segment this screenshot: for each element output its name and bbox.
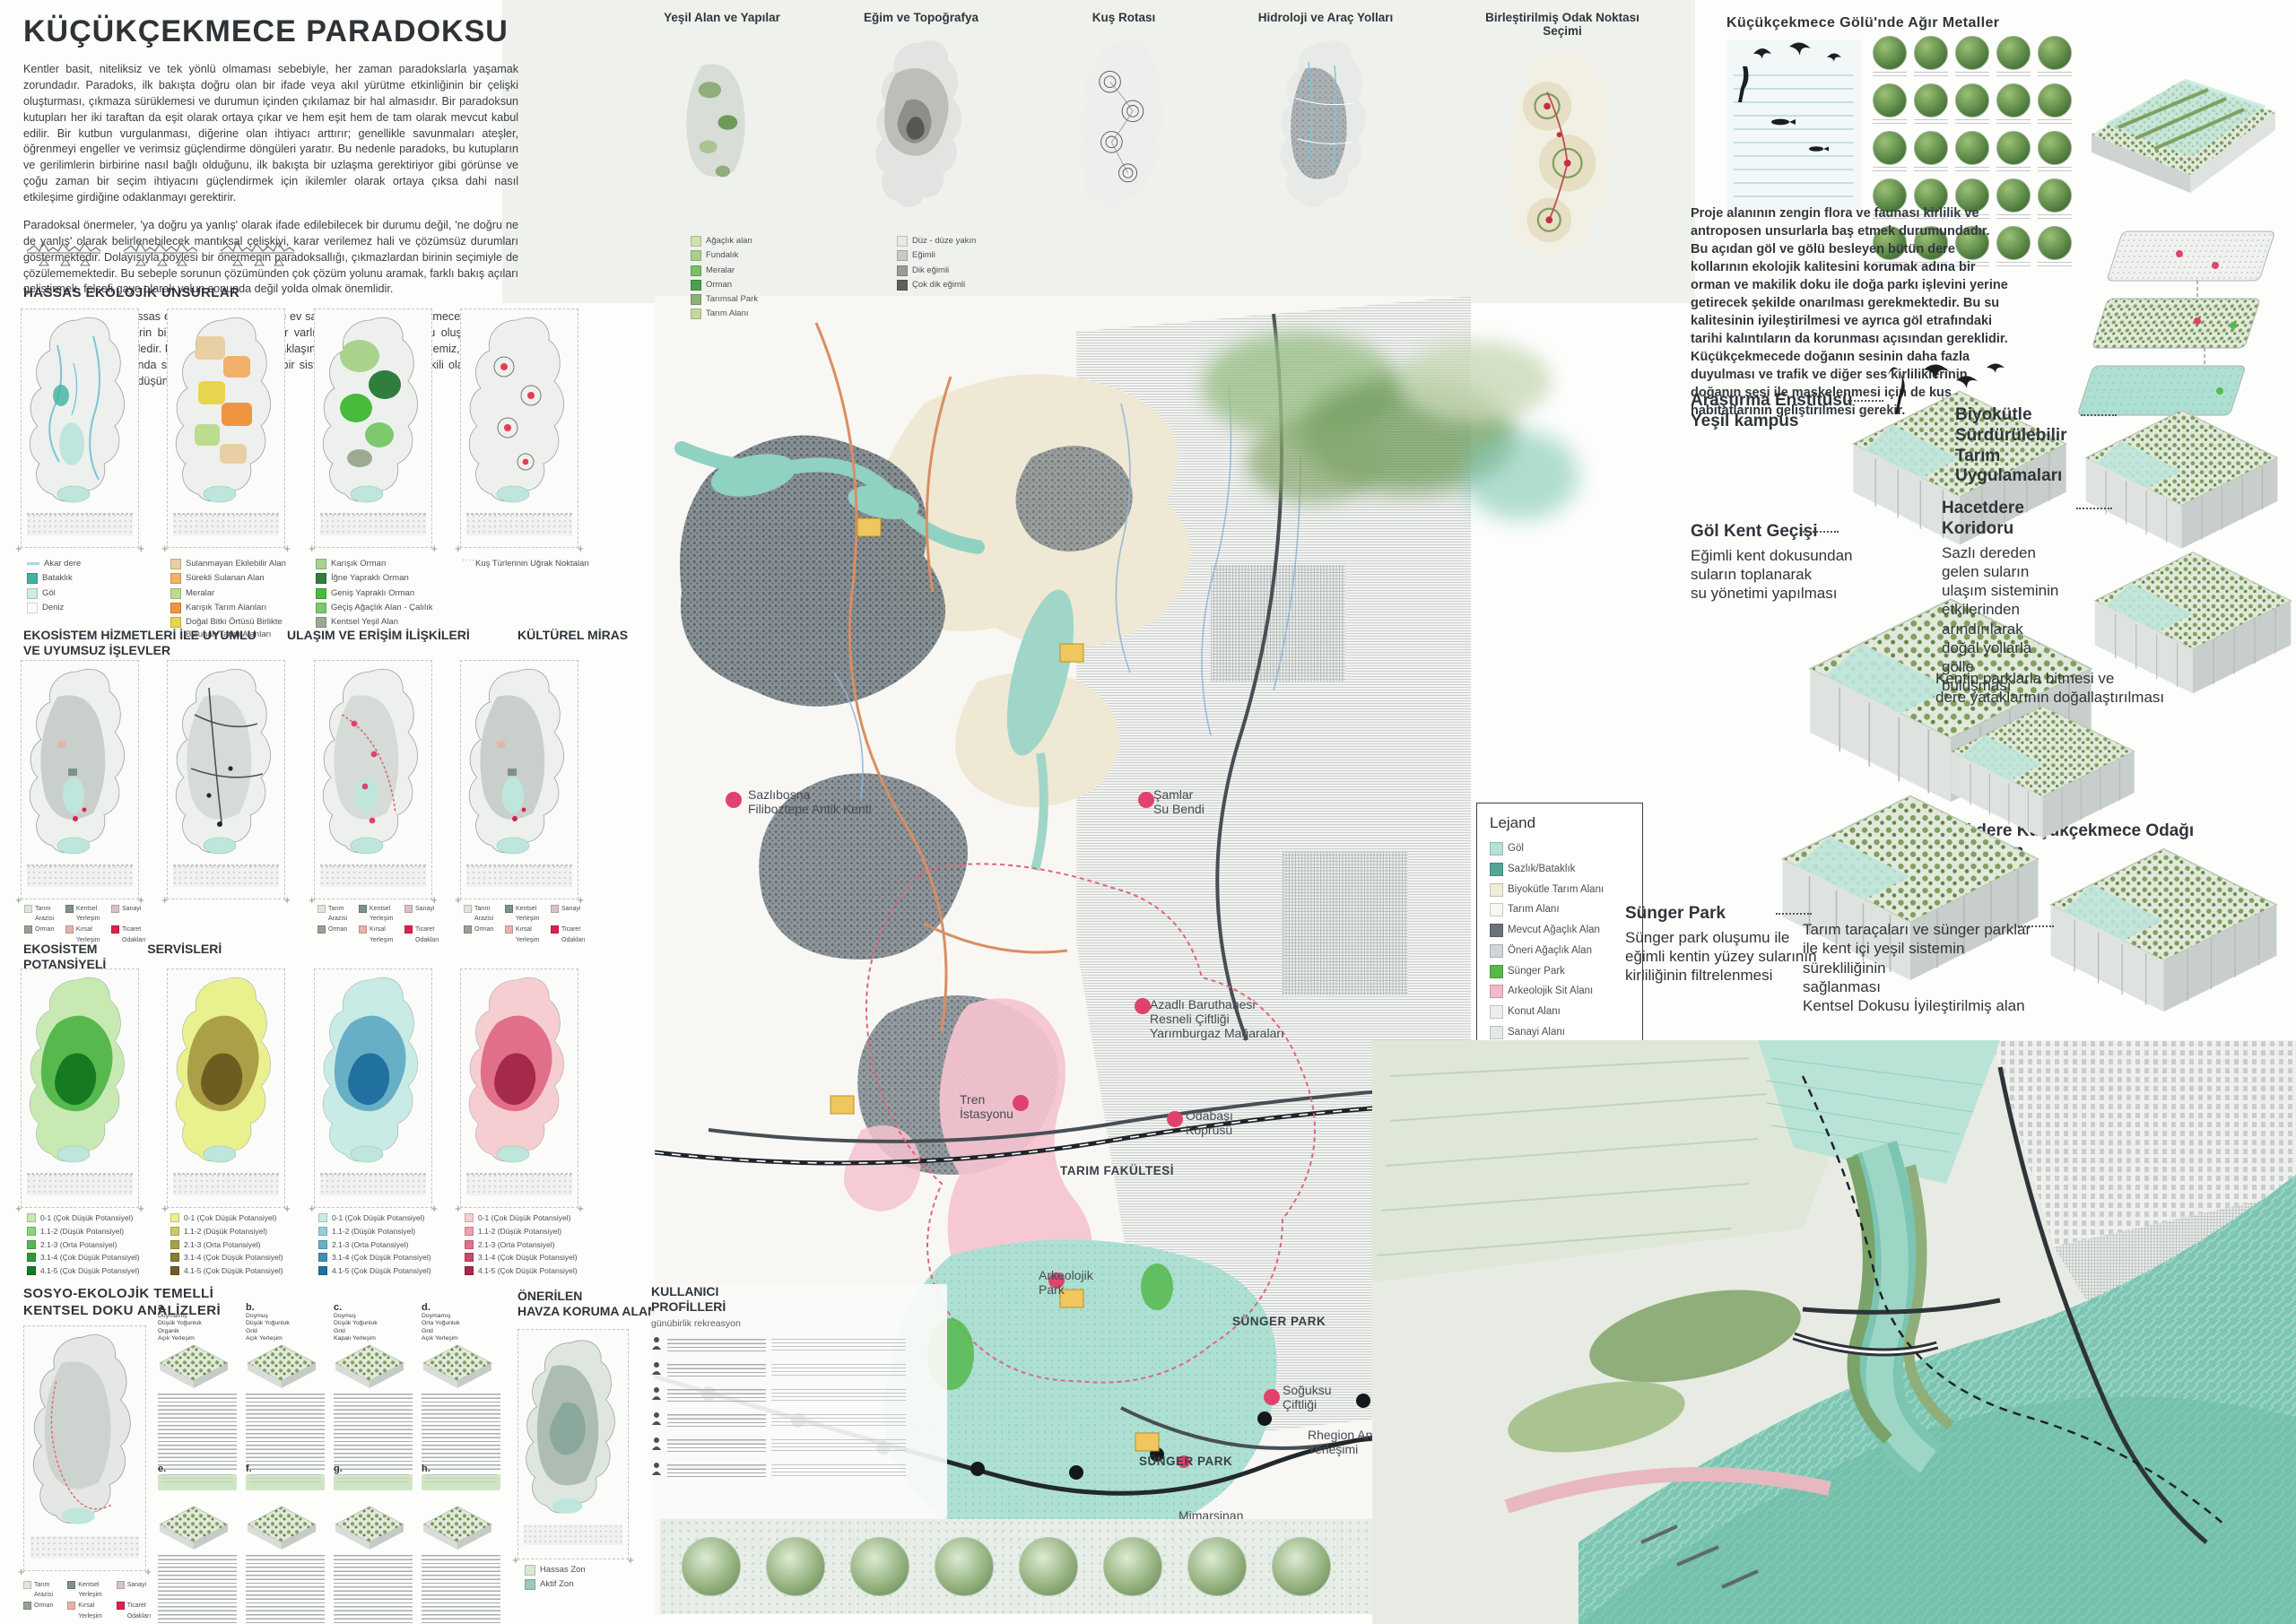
analysis-map-graphic	[315, 661, 431, 899]
legend-swatch	[111, 925, 119, 934]
doku-block-text	[334, 1394, 413, 1471]
legend-label: 3.1-4 (Çok Düşük Potansiyel)	[40, 1252, 161, 1264]
legend-item: 4.1-5 (Çok Düşük Potansiyel)	[27, 1265, 161, 1277]
top-map-label: Birleştirilmiş Odak Noktası Seçimi	[1482, 11, 1643, 38]
legend-swatch	[1490, 883, 1503, 897]
legend-item: Dik eğimli	[897, 265, 996, 277]
legend-label: Çok dik eğimli	[912, 279, 996, 291]
plant-caption	[1955, 119, 1989, 125]
plant-caption	[2038, 72, 2072, 77]
legend-label: İğne Yapraklı Orman	[331, 572, 450, 585]
hassas-map-1	[21, 308, 139, 548]
legend-swatch	[525, 1579, 535, 1590]
legend-swatch	[27, 588, 38, 599]
legend-label: Akar dere	[44, 558, 161, 570]
legend-item: 0-1 (Çok Düşük Potansiyel)	[318, 1212, 453, 1224]
skyline-sketch	[122, 230, 199, 271]
legend-swatch	[316, 617, 326, 628]
legend-item: Orman	[464, 925, 498, 944]
legend-item: Tarım Alanı	[1490, 902, 1630, 917]
legend-item: Orman	[691, 279, 789, 291]
doku-block-text	[246, 1394, 325, 1471]
legend-label: Eğimli	[912, 249, 996, 262]
doku-block-header	[158, 1474, 240, 1505]
legend-label: Kentsel Yerleşim	[516, 904, 544, 924]
profile-text-lines	[667, 1339, 766, 1351]
legend-swatch	[24, 925, 32, 934]
doku-block-axon	[158, 1505, 230, 1551]
section-title-islev-2: ULAŞIM VE ERİŞİM İLİŞKİLERİ	[287, 628, 511, 643]
green-areas-legend: Ağaçlık alanFundalıkMeralarOrmanTarımsal…	[691, 235, 789, 323]
doku-block-header	[246, 1474, 328, 1505]
plant-photo	[1996, 36, 2031, 70]
legend-label: Orman	[34, 1601, 53, 1611]
legend-item: Sanayi	[404, 904, 443, 924]
legend-swatch	[117, 1581, 125, 1589]
plant-caption	[1955, 72, 1989, 77]
legend-swatch	[24, 905, 32, 913]
potansiyel-legend-4: 0-1 (Çok Düşük Potansiyel)1.1-2 (Düşük P…	[465, 1212, 599, 1279]
park-vignette	[1272, 1537, 1331, 1596]
callout-axon-chip	[2081, 405, 2283, 561]
legend-swatch	[65, 925, 74, 934]
map-place-label: Azadlı Baruthanesi Resneli Çiftliği Yarı…	[1150, 997, 1284, 1040]
analysis-map-graphic	[22, 969, 138, 1207]
legend-swatch	[1490, 1005, 1503, 1019]
legend-item: 2.1-3 (Orta Potansiyel)	[170, 1239, 305, 1251]
user-profile-row	[651, 1462, 947, 1481]
legend-label: Fundalık	[706, 249, 789, 262]
plant-photo	[2038, 83, 2072, 117]
legend-item: 2.1-3 (Orta Potansiyel)	[465, 1239, 599, 1251]
legend-swatch: ····	[462, 559, 471, 562]
legend-label: Orman	[474, 925, 493, 934]
legend-label: Hassas Zon	[540, 1564, 623, 1576]
legend-item: 4.1-5 (Çok Düşük Potansiyel)	[465, 1265, 599, 1277]
legend-swatch	[27, 573, 38, 584]
hassas-map-2	[167, 308, 285, 548]
legend-swatch	[318, 1213, 327, 1222]
legend-item: Düz - düze yakın	[897, 235, 996, 248]
callout-leader-line	[2076, 508, 2112, 511]
legend-swatch	[27, 1227, 36, 1236]
plant-caption	[1996, 167, 2031, 172]
profile-detail-lines	[771, 1439, 906, 1452]
doku-block-header: Doymuş Düşük Yoğunluk Grid Kapalı Yerleş…	[334, 1313, 416, 1343]
legend-label: 0-1 (Çok Düşük Potansiyel)	[478, 1212, 599, 1224]
plant-thumbnail	[1873, 131, 1907, 172]
doku-block-header: Doymuş Düşük Yoğunluk Grid Açık Yerleşim	[246, 1313, 328, 1343]
plant-thumbnail	[1914, 83, 1948, 125]
analysis-map-graphic	[461, 661, 578, 899]
analysis-map-graphic	[168, 309, 284, 547]
plant-photo	[1955, 131, 1989, 165]
callout-title: Araştırma Enstitüsü Yeşil kampüs	[1691, 391, 1870, 432]
legend-swatch	[27, 1266, 36, 1275]
legend-label: Tarım Arazisi	[474, 904, 498, 924]
hassas-legend-3: Karışık Ormanİğne Yapraklı OrmanGeniş Ya…	[316, 558, 450, 630]
legend-label: Göl	[1508, 841, 1630, 856]
legend-label: 1.1-2 (Düşük Potansiyel)	[40, 1226, 161, 1238]
islev-legend-2: Tarım ArazisiKentsel YerleşimSanayiOrman…	[317, 904, 443, 946]
profile-detail-lines	[771, 1339, 906, 1351]
legend-swatch	[505, 925, 513, 934]
legend-swatch	[318, 1227, 327, 1236]
legend-swatch	[525, 1565, 535, 1576]
legend-label: Sürekli Sulanan Alan	[186, 572, 305, 585]
legend-label: Aktif Zon	[540, 1578, 623, 1591]
doku-block-text	[422, 1394, 500, 1471]
legend-item: Fundalık	[691, 249, 789, 262]
legend-label: Orman	[35, 925, 54, 934]
plant-caption	[1996, 72, 2031, 77]
profile-detail-lines	[771, 1414, 906, 1427]
user-profile-row	[651, 1386, 947, 1405]
legend-item: Orman	[24, 925, 58, 944]
doku-block-axon	[334, 1343, 405, 1390]
legend-label: Orman	[328, 925, 347, 934]
legend-item: Sanayi	[551, 904, 589, 924]
analysis-map-graphic	[168, 661, 284, 899]
legend-swatch	[465, 1227, 474, 1236]
callout-title: Biyokütle Sürdürülebilir Tarım Uygulamal…	[1955, 405, 2099, 487]
doku-block-axon	[246, 1505, 317, 1551]
plant-caption	[1914, 119, 1948, 125]
legend-swatch	[318, 1253, 327, 1262]
legend-item: Aktif Zon	[525, 1578, 623, 1591]
user-profiles-title: KULLANICI PROFİLLERİ	[651, 1284, 947, 1315]
legend-item: Ağaçlık alan	[691, 235, 789, 248]
top-map-panel-2: Eğim ve Topoğrafya	[850, 11, 992, 254]
legend-item: Kırsal Yerleşim	[65, 925, 104, 944]
layered-axon-diagram	[2063, 222, 2287, 429]
plant-thumbnail	[1873, 83, 1907, 125]
legend-label: Göl	[42, 587, 161, 600]
legend-swatch	[170, 603, 181, 613]
legend-swatch	[1490, 903, 1503, 916]
legend-label: Sünger Park	[1508, 964, 1630, 979]
legend-label: Arkeolojik Sit Alanı	[1508, 984, 1630, 999]
legend-item: Mevcut Ağaçlık Alan	[1490, 923, 1630, 938]
legend-swatch	[897, 250, 908, 261]
callout-leader-line	[2018, 925, 2054, 929]
legend-swatch	[316, 588, 326, 599]
legend-item: Arkeolojik Sit Alanı	[1490, 984, 1630, 999]
plant-thumbnail	[2038, 83, 2072, 125]
top-map-graphic	[868, 28, 974, 254]
metals-title: Küçükçekmece Gölü'nde Ağır Metaller	[1726, 14, 1999, 32]
legend-item: Geçiş Ağaçlık Alan - Çalılık	[316, 602, 450, 614]
legend-swatch	[464, 905, 472, 913]
legend-item: Kentsel Yerleşim	[67, 1580, 109, 1600]
legend-swatch	[27, 1253, 36, 1262]
legend-swatch	[316, 603, 326, 613]
map-place-label: SÜNGER PARK	[1139, 1455, 1232, 1469]
legend-item: Ticaret Odakları	[404, 925, 443, 944]
legend-item: Ticaret Odakları	[117, 1601, 158, 1620]
plant-photo	[1873, 36, 1907, 70]
legend-item: Sünger Park	[1490, 964, 1630, 979]
plant-thumbnail	[2038, 131, 2072, 172]
legend-item: Orman	[317, 925, 352, 944]
legend-swatch	[170, 559, 181, 569]
user-profile-row	[651, 1336, 947, 1355]
top-map-graphic	[1495, 41, 1630, 310]
legend-swatch	[897, 236, 908, 247]
top-map-panel-1: Yeşil Alan ve Yapılar	[651, 11, 793, 254]
section-title-hassas: HASSAS EKOLOJİK UNSURLAR	[23, 285, 239, 302]
callout-8: Tarım taraçaları ve sünger parklar ile k…	[1803, 916, 2036, 1015]
profile-text-lines	[667, 1439, 766, 1452]
skyline-sketch	[219, 230, 296, 271]
callout-axon-chip	[2045, 843, 2283, 1026]
legend-item: Sazlık/Bataklık	[1490, 862, 1630, 877]
plant-thumbnail	[1914, 131, 1948, 172]
doku-block-header	[422, 1474, 504, 1505]
doku-block-header: Doymamış Düşük Yoğunluk Organik Açık Yer…	[158, 1313, 240, 1343]
analysis-map-graphic	[461, 309, 578, 547]
callout-2: Biyokütle Sürdürülebilir Tarım Uygulamal…	[1955, 405, 2099, 487]
person-icon	[651, 1411, 662, 1430]
top-map-label: Yeşil Alan ve Yapılar	[651, 11, 793, 24]
profile-detail-lines	[771, 1364, 906, 1376]
islev-legend-1: Tarım ArazisiKentsel YerleşimSanayiOrman…	[24, 904, 150, 946]
legend-item: 3.1-4 (Çok Düşük Potansiyel)	[465, 1252, 599, 1264]
plant-photo	[2038, 131, 2072, 165]
legend-label: Bataklık	[42, 572, 161, 585]
islev-map-1	[21, 660, 139, 899]
legend-swatch	[23, 1602, 31, 1610]
doku-block-text	[246, 1555, 325, 1624]
legend-label: Meralar	[706, 265, 789, 277]
profile-detail-lines	[771, 1389, 906, 1402]
havza-map	[517, 1329, 629, 1559]
legend-label: Geçiş Ağaçlık Alan - Çalılık	[331, 602, 450, 614]
map-place-label: Şamlar Su Bendi	[1153, 787, 1205, 816]
legend-item: Çok dik eğimli	[897, 279, 996, 291]
legend-label: Tarım Arazisi	[35, 904, 58, 924]
legend-label: Deniz	[42, 602, 161, 614]
legend-item: Öneri Ağaçlık Alan	[1490, 943, 1630, 959]
legend-label: Tarım Alanı	[1508, 902, 1630, 917]
legend-label: Orman	[706, 279, 789, 291]
doku-block-header: Doymamış Orta Yoğunluk Grid Açık Yerleşi…	[422, 1313, 504, 1343]
islev-map-4	[460, 660, 578, 899]
islev-map-2	[167, 660, 285, 899]
legend-swatch	[465, 1266, 474, 1275]
top-map-panel-4: Hidroloji ve Araç Yolları	[1254, 11, 1397, 254]
legend-item: Kentsel Yerleşim	[505, 904, 544, 924]
legend-swatch	[897, 265, 908, 276]
section-title-havza: ÖNERİLEN HAVZA KORUMA ALANI	[517, 1289, 660, 1319]
top-map-label: Kuş Rotası	[1057, 11, 1191, 24]
legend-label: Meralar	[186, 587, 305, 600]
slope-legend: Düz - düze yakınEğimliDik eğimliÇok dik …	[897, 235, 996, 293]
legend-swatch	[170, 1213, 179, 1222]
plant-thumbnail	[1996, 83, 2031, 125]
legend-swatch	[170, 588, 181, 599]
legend-label: Sanayi	[122, 904, 141, 914]
lake-section-diagram	[1726, 39, 1861, 210]
legend-item: Tarım Arazisi	[24, 904, 58, 924]
callout-body: Tarım taraçaları ve sünger parklar ile k…	[1803, 920, 2036, 1015]
legend-item: Kırsal Yerleşim	[359, 925, 397, 944]
legend-item: İğne Yapraklı Orman	[316, 572, 450, 585]
legend-item: Karışık Tarım Alanları	[170, 602, 305, 614]
park-vignette	[682, 1537, 741, 1596]
legend-label: 4.1-5 (Çok Düşük Potansiyel)	[478, 1265, 599, 1277]
callout-leader-line	[1803, 531, 1839, 534]
legend-item: Kentsel Yerleşim	[359, 904, 397, 924]
legend-label: Sanayi Alanı	[1508, 1025, 1630, 1040]
legend-item: Sanayi	[111, 904, 150, 924]
legend-label: Tarım Arazisi	[34, 1580, 60, 1600]
analysis-map-graphic	[315, 969, 431, 1207]
plant-thumbnail	[1996, 36, 2031, 77]
map-place-label: Soğuksu Çiftliği	[1283, 1383, 1331, 1411]
legend-item: Tarım Arazisi	[464, 904, 498, 924]
top-map-panel-3: Kuş Rotası	[1057, 11, 1191, 254]
potansiyel-legend-1: 0-1 (Çok Düşük Potansiyel)1.1-2 (Düşük P…	[27, 1212, 161, 1279]
legend-label: Kırsal Yerleşim	[76, 925, 104, 944]
legend-swatch	[117, 1602, 125, 1610]
map-place-label: SÜNGER PARK	[1232, 1315, 1326, 1329]
legend-item: Eğimli	[897, 249, 996, 262]
doku-block-axon	[422, 1505, 493, 1551]
doku-block-letter: a.	[158, 1302, 240, 1313]
hassas-legend-4: ····Kuş Türlerinin Uğrak Noktaları	[462, 558, 596, 572]
legend-item: Ticaret Odakları	[111, 925, 150, 944]
plant-photo	[1996, 131, 2031, 165]
legend-item: 3.1-4 (Çok Düşük Potansiyel)	[318, 1252, 453, 1264]
legend-label: Ağaçlık alan	[706, 235, 789, 248]
legend-swatch	[404, 925, 413, 934]
legend-item: 0-1 (Çok Düşük Potansiyel)	[170, 1212, 305, 1224]
context-sketches	[25, 230, 321, 271]
top-map-graphic	[1071, 28, 1177, 254]
legend-label: 2.1-3 (Orta Potansiyel)	[332, 1239, 453, 1251]
legend-swatch	[404, 905, 413, 913]
legend-item: 4.1-5 (Çok Düşük Potansiyel)	[170, 1265, 305, 1277]
legend-item: Sanayi	[117, 1580, 158, 1600]
legend-swatch	[170, 617, 181, 628]
doku-block-f: f.	[246, 1463, 328, 1624]
doku-block-text	[334, 1555, 413, 1624]
legend-item: Akar dere	[27, 558, 161, 570]
plant-caption	[1873, 119, 1907, 125]
legend-item: Hassas Zon	[525, 1564, 623, 1576]
legend-item: Orman	[23, 1601, 60, 1620]
legend-label: 4.1-5 (Çok Düşük Potansiyel)	[40, 1265, 161, 1277]
legend-label: Ticaret Odakları	[127, 1601, 158, 1620]
plant-photo	[1914, 83, 1948, 117]
legend-swatch	[691, 308, 701, 319]
legend-item: Konut Alanı	[1490, 1004, 1630, 1020]
section-title-islev-3: KÜLTÜREL MİRAS	[517, 628, 634, 643]
plant-photo	[1955, 36, 1989, 70]
doku-block-letter: b.	[246, 1302, 328, 1313]
doku-block-axon	[158, 1343, 230, 1390]
legend-item: Göl	[27, 587, 161, 600]
map-place-label: Odabaşı Köprüsü	[1186, 1108, 1233, 1137]
plant-caption	[2038, 214, 2072, 220]
legend-label: 0-1 (Çok Düşük Potansiyel)	[40, 1212, 161, 1224]
legend-label: Tarım Arazisi	[328, 904, 352, 924]
map-place-label: Arkeolojik Park	[1039, 1268, 1093, 1297]
legend-label: Mevcut Ağaçlık Alan	[1508, 923, 1630, 938]
legend-label: 4.1-5 (Çok Düşük Potansiyel)	[332, 1265, 453, 1277]
park-vignette	[1103, 1537, 1162, 1596]
person-icon	[651, 1336, 662, 1355]
sosyo-base-map	[23, 1325, 146, 1571]
legend-label: Kırsal Yerleşim	[516, 925, 544, 944]
legend-item: 1.1-2 (Düşük Potansiyel)	[170, 1226, 305, 1238]
legend-item: 0-1 (Çok Düşük Potansiyel)	[465, 1212, 599, 1224]
profile-text-lines	[667, 1364, 766, 1376]
plant-caption	[1873, 72, 1907, 77]
plant-photo	[1914, 131, 1948, 165]
plant-photo	[1873, 83, 1907, 117]
doku-block-text	[158, 1394, 237, 1471]
profile-detail-lines	[771, 1464, 906, 1477]
person-icon	[651, 1361, 662, 1380]
hassas-map-3	[314, 308, 432, 548]
potansiyel-map-1	[21, 968, 139, 1208]
potansiyel-legend-2: 0-1 (Çok Düşük Potansiyel)1.1-2 (Düşük P…	[170, 1212, 305, 1279]
legend-label: Sazlık/Bataklık	[1508, 862, 1630, 877]
doku-block-axon	[422, 1343, 493, 1390]
doku-block-letter: d.	[422, 1302, 504, 1313]
legend-label: 1.1-2 (Düşük Potansiyel)	[184, 1226, 305, 1238]
legend-swatch	[27, 1213, 36, 1222]
legend-swatch	[551, 925, 559, 934]
legend-label: Ticaret Odakları	[122, 925, 150, 944]
legend-swatch	[1490, 842, 1503, 855]
legend-item: Sürekli Sulanan Alan	[170, 572, 305, 585]
analysis-map-graphic	[22, 309, 138, 547]
legend-label: Sanayi	[415, 904, 434, 914]
legend-label: 2.1-3 (Orta Potansiyel)	[478, 1239, 599, 1251]
park-vignette	[766, 1537, 825, 1596]
map-place-label: TARIM FAKÜLTESİ	[1060, 1164, 1174, 1178]
plant-caption	[2038, 167, 2072, 172]
callout-leader-line	[2081, 414, 2117, 418]
top-map-graphic	[669, 28, 775, 254]
legend-item: 0-1 (Çok Düşük Potansiyel)	[27, 1212, 161, 1224]
legend-item: Sanayi Alanı	[1490, 1025, 1630, 1040]
legend-label: Dik eğimli	[912, 265, 996, 277]
legend-label: Biyokütle Tarım Alanı	[1508, 882, 1630, 898]
legend-label: Kuş Türlerinin Uğrak Noktaları	[475, 558, 596, 570]
poster-board: KÜÇÜKÇEKMECE PARADOKSU Kentler basit, ni…	[0, 0, 2296, 1624]
top-map-panel-5: Birleştirilmiş Odak Noktası Seçimi	[1482, 11, 1643, 310]
legend-item: Kentsel Yerleşim	[65, 904, 104, 924]
top-map-label: Eğim ve Topoğrafya	[850, 11, 992, 24]
legend-swatch	[691, 236, 701, 247]
legend-label: Tarım Alanı	[706, 308, 789, 320]
legend-label: Düz - düze yakın	[912, 235, 996, 248]
plant-thumbnail	[1996, 131, 2031, 172]
section-title-islev-1: EKOSİSTEM HİZMETLERİ İLE UYUMLU VE UYUMS…	[23, 628, 261, 658]
havza-legend: Hassas ZonAktif Zon	[525, 1564, 623, 1594]
profile-text-lines	[667, 1389, 766, 1402]
legend-swatch	[359, 905, 367, 913]
doku-block-h: h.	[422, 1463, 504, 1624]
legend-item: Sulanmayan Ekilebilir Alan	[170, 558, 305, 570]
legend-item: 1.1-2 (Düşük Potansiyel)	[318, 1226, 453, 1238]
legend-label: Kırsal Yerleşim	[78, 1601, 109, 1620]
legend-item: Göl	[1490, 841, 1630, 856]
